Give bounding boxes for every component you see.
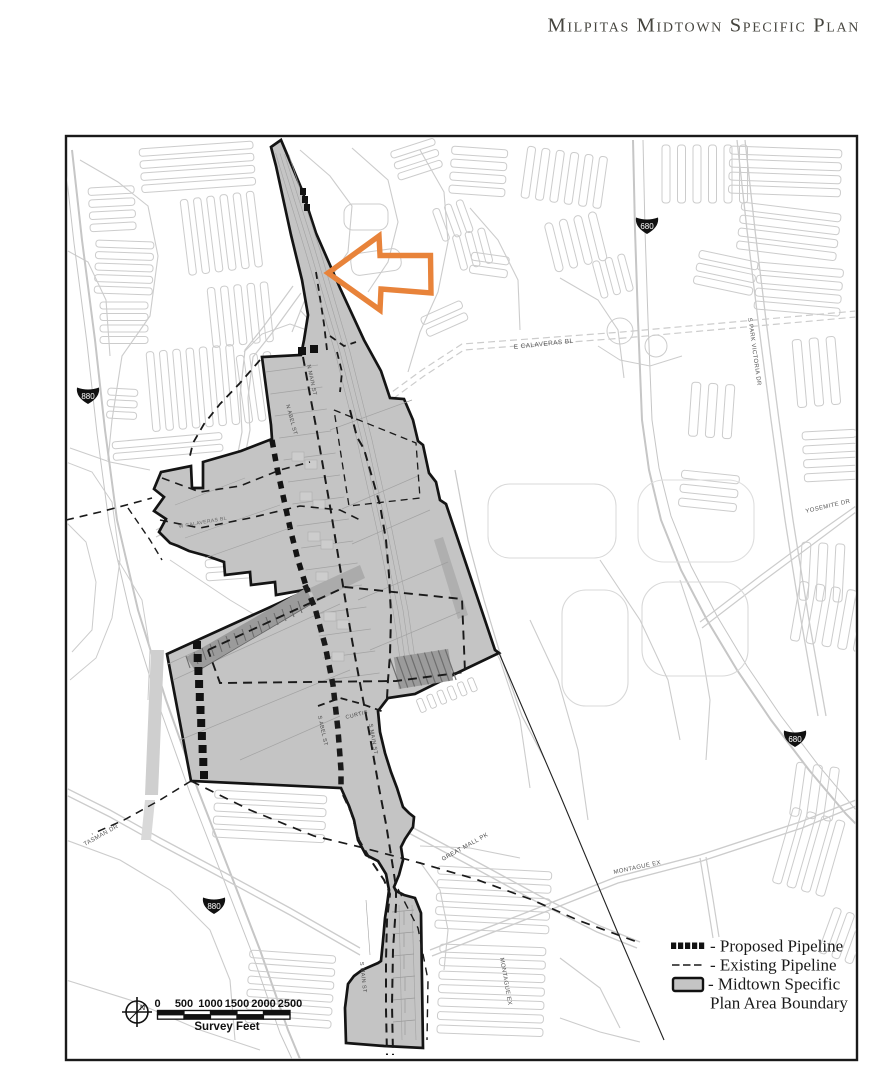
svg-text:680: 680 [640, 222, 654, 231]
svg-text:Plan Area Boundary: Plan Area Boundary [710, 994, 848, 1013]
svg-text:1500: 1500 [225, 998, 249, 1010]
svg-text:N: N [140, 1005, 145, 1012]
svg-text:500: 500 [175, 998, 193, 1010]
svg-text:880: 880 [207, 902, 221, 911]
svg-text:0: 0 [154, 998, 160, 1010]
svg-text:2000: 2000 [251, 998, 275, 1010]
svg-text:Survey Feet: Survey Feet [194, 1021, 259, 1033]
svg-text:680: 680 [788, 735, 802, 744]
svg-text:880: 880 [81, 392, 95, 401]
svg-text:- Midtown Specific: - Midtown Specific [708, 975, 841, 994]
svg-text:Milpitas Midtown Specific Plan: Milpitas Midtown Specific Plan [547, 15, 860, 37]
svg-text:1000: 1000 [198, 998, 222, 1010]
svg-text:- Existing Pipeline: - Existing Pipeline [710, 956, 837, 975]
svg-text:2500: 2500 [278, 998, 302, 1010]
svg-text:- Proposed Pipeline: - Proposed Pipeline [710, 937, 843, 956]
